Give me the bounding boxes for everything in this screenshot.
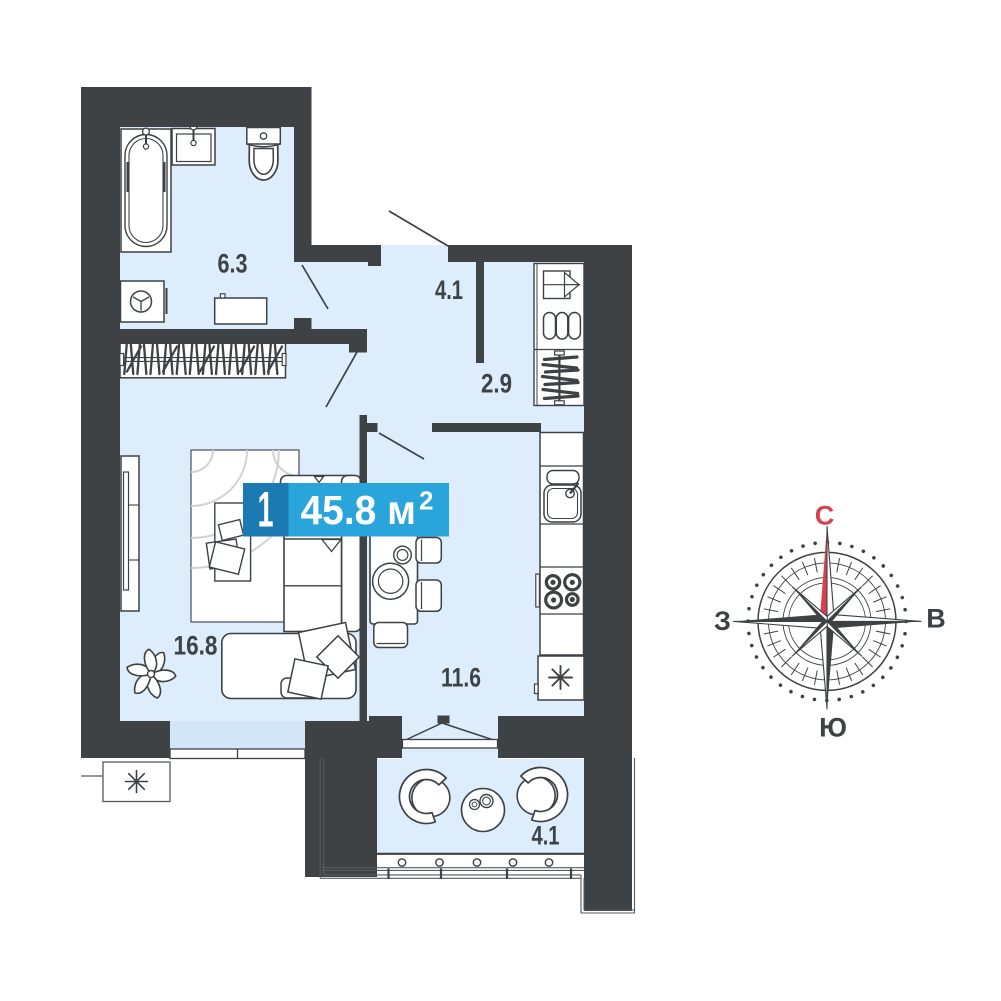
svg-text:2: 2 <box>419 486 433 516</box>
svg-text:С: С <box>815 501 835 531</box>
svg-text:4.1: 4.1 <box>532 821 560 851</box>
svg-text:11.6: 11.6 <box>441 663 481 693</box>
svg-text:Ю: Ю <box>819 713 847 743</box>
svg-text:16.8: 16.8 <box>174 631 218 661</box>
svg-text:2.9: 2.9 <box>481 369 512 399</box>
svg-text:В: В <box>926 604 946 634</box>
svg-text:45.8 м: 45.8 м <box>301 487 417 533</box>
svg-text:6.3: 6.3 <box>218 249 248 279</box>
svg-text:4.1: 4.1 <box>435 275 463 305</box>
svg-text:1: 1 <box>258 482 274 538</box>
svg-text:З: З <box>714 606 731 636</box>
